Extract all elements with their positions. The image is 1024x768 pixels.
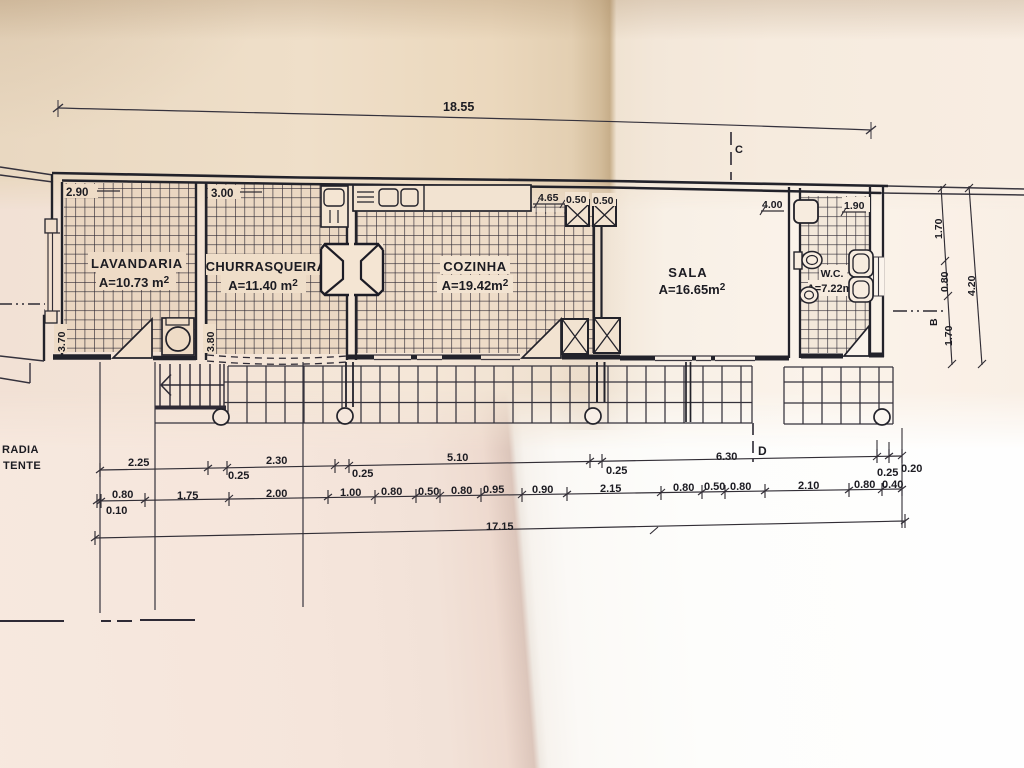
svg-text:0.40: 0.40 xyxy=(882,479,903,491)
svg-text:0.95: 0.95 xyxy=(483,484,504,496)
svg-text:C: C xyxy=(735,144,743,156)
svg-text:4.65: 4.65 xyxy=(538,192,559,204)
svg-text:1.00: 1.00 xyxy=(340,487,361,499)
svg-text:4.20: 4.20 xyxy=(966,275,978,296)
svg-text:LAVANDARIA: LAVANDARIA xyxy=(91,256,183,271)
svg-text:0.80: 0.80 xyxy=(854,479,875,491)
svg-text:0.10: 0.10 xyxy=(106,505,127,517)
svg-text:1.90: 1.90 xyxy=(844,200,865,212)
svg-text:0.80: 0.80 xyxy=(939,271,951,292)
svg-text:0.25: 0.25 xyxy=(228,470,249,482)
svg-text:2.00: 2.00 xyxy=(266,488,287,500)
svg-text:1.70: 1.70 xyxy=(933,218,945,239)
svg-text:18.55: 18.55 xyxy=(443,100,474,114)
svg-text:2.15: 2.15 xyxy=(600,483,621,495)
svg-text:0.50: 0.50 xyxy=(704,481,725,493)
svg-text:2.25: 2.25 xyxy=(128,457,149,469)
svg-text:0.80: 0.80 xyxy=(381,486,402,498)
svg-text:1.75: 1.75 xyxy=(177,490,198,502)
svg-text:SALA: SALA xyxy=(668,265,707,280)
svg-text:1.70: 1.70 xyxy=(943,325,955,346)
svg-text:0.50: 0.50 xyxy=(593,195,614,207)
svg-text:W.C.: W.C. xyxy=(821,268,844,280)
svg-text:RADIA: RADIA xyxy=(2,444,39,456)
svg-text:17.15: 17.15 xyxy=(486,521,514,533)
svg-text:TENTE: TENTE xyxy=(3,460,41,472)
svg-text:0.50: 0.50 xyxy=(418,486,439,498)
svg-text:3.70: 3.70 xyxy=(56,331,68,352)
svg-text:0.25: 0.25 xyxy=(877,467,898,479)
svg-text:2.10: 2.10 xyxy=(798,480,819,492)
svg-text:0.80: 0.80 xyxy=(673,482,694,494)
svg-text:0.80: 0.80 xyxy=(730,481,751,493)
svg-text:6.30: 6.30 xyxy=(716,451,737,463)
svg-text:B: B xyxy=(928,318,940,326)
svg-text:A=10.73 m2: A=10.73 m2 xyxy=(99,275,170,290)
svg-text:3.00: 3.00 xyxy=(211,188,233,200)
svg-text:0.90: 0.90 xyxy=(532,484,553,496)
svg-text:D: D xyxy=(758,444,767,458)
svg-text:0.50: 0.50 xyxy=(566,194,587,206)
svg-text:A=19.42m2: A=19.42m2 xyxy=(442,278,509,293)
svg-text:A=11.40 m2: A=11.40 m2 xyxy=(228,278,298,293)
svg-text:2.30: 2.30 xyxy=(266,455,287,467)
svg-text:0.20: 0.20 xyxy=(901,463,922,475)
svg-text:3.80: 3.80 xyxy=(205,331,217,352)
svg-text:5.10: 5.10 xyxy=(447,452,468,464)
svg-text:0.80: 0.80 xyxy=(112,489,133,501)
svg-text:4.00: 4.00 xyxy=(762,199,783,211)
svg-text:COZINHA: COZINHA xyxy=(443,259,506,274)
svg-text:0.25: 0.25 xyxy=(352,468,373,480)
svg-text:0.80: 0.80 xyxy=(451,485,472,497)
svg-text:CHURRASQUEIRA: CHURRASQUEIRA xyxy=(206,259,327,274)
svg-text:A=16.65m2: A=16.65m2 xyxy=(659,282,726,297)
svg-text:2.90: 2.90 xyxy=(66,187,88,199)
svg-text:0.25: 0.25 xyxy=(606,465,627,477)
